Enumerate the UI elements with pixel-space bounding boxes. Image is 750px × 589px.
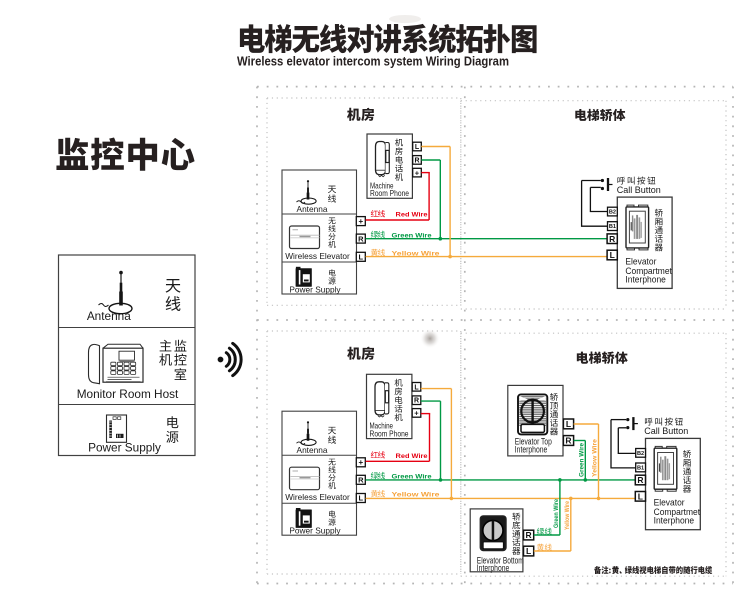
- svg-text:Antenna: Antenna: [297, 204, 328, 214]
- svg-text:L: L: [359, 253, 364, 262]
- svg-text:Wireless Elevator: Wireless Elevator: [285, 492, 350, 502]
- svg-text:Antenna: Antenna: [297, 445, 328, 455]
- svg-text:Elevator: Elevator: [625, 256, 656, 266]
- svg-text:R: R: [609, 234, 615, 244]
- svg-text:Wireless elevator intercom sys: Wireless elevator intercom system Wiring…: [237, 55, 509, 69]
- svg-text:B2: B2: [637, 451, 644, 457]
- svg-text:Green Wire: Green Wire: [392, 232, 432, 239]
- svg-text:Yellow Wire: Yellow Wire: [564, 501, 571, 530]
- svg-text:R: R: [414, 398, 419, 405]
- svg-text:Elevator: Elevator: [654, 498, 685, 508]
- svg-text:L: L: [415, 144, 420, 151]
- svg-text:Green Wire: Green Wire: [579, 443, 586, 477]
- svg-text:Power Supply: Power Supply: [289, 526, 341, 536]
- svg-text:Monitor Room Host: Monitor Room Host: [77, 387, 179, 401]
- svg-text:B1: B1: [609, 224, 616, 230]
- svg-text:Interphone: Interphone: [515, 444, 548, 454]
- svg-text:Antenna: Antenna: [87, 309, 131, 323]
- svg-text:Green Wire: Green Wire: [392, 474, 432, 481]
- svg-text:Call Button: Call Button: [617, 184, 661, 195]
- svg-text:+: +: [414, 409, 419, 418]
- svg-text:L: L: [610, 250, 615, 260]
- svg-text:L: L: [359, 494, 364, 503]
- svg-text:B1: B1: [637, 465, 644, 471]
- svg-text:R: R: [358, 234, 364, 243]
- svg-text:Interphone: Interphone: [477, 563, 510, 573]
- svg-text:Interphone: Interphone: [625, 274, 666, 284]
- svg-text:Green Wire: Green Wire: [553, 499, 560, 528]
- svg-text:Red Wire: Red Wire: [396, 453, 428, 460]
- svg-text:R: R: [637, 475, 643, 485]
- svg-text:+: +: [415, 168, 420, 177]
- svg-text:R: R: [526, 530, 532, 540]
- svg-text:Yellow Wire: Yellow Wire: [392, 250, 440, 257]
- svg-text:+: +: [358, 217, 363, 226]
- svg-text:Call Button: Call Button: [644, 425, 688, 436]
- svg-text:+: +: [358, 458, 363, 467]
- svg-text:Power Supply: Power Supply: [88, 440, 161, 454]
- svg-text:Yellow Wire: Yellow Wire: [392, 492, 440, 499]
- svg-text:L: L: [526, 546, 531, 556]
- svg-text:L: L: [414, 384, 419, 391]
- svg-text:Room Phone: Room Phone: [370, 430, 409, 439]
- svg-text:R: R: [414, 157, 419, 164]
- svg-text:Interphone: Interphone: [654, 516, 695, 526]
- svg-text:L: L: [638, 491, 643, 501]
- svg-text:R: R: [358, 476, 364, 485]
- svg-text:Room Phone: Room Phone: [370, 189, 409, 198]
- svg-text:Wireless Elevator: Wireless Elevator: [285, 251, 350, 261]
- svg-text:Red Wire: Red Wire: [396, 212, 428, 219]
- svg-text:Yellow Wire: Yellow Wire: [592, 439, 599, 477]
- svg-text:B2: B2: [609, 210, 616, 216]
- svg-text:Power Supply: Power Supply: [289, 284, 341, 294]
- svg-text:R: R: [565, 436, 571, 446]
- svg-text:L: L: [566, 419, 571, 429]
